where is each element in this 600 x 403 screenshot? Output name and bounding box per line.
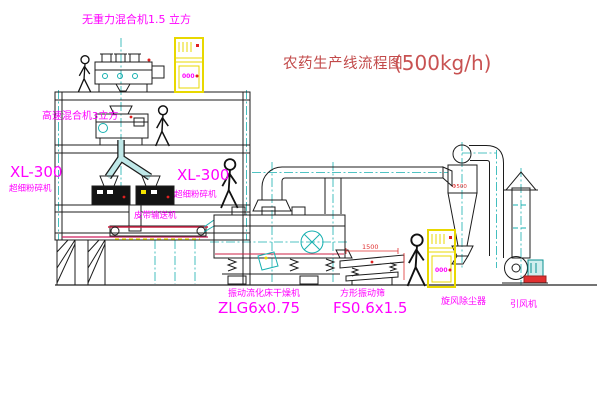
cabinet2-display: 000 [435, 267, 448, 274]
person-top-floor [78, 56, 90, 92]
person-second-floor [156, 106, 170, 146]
induced-draft-fan [502, 257, 548, 284]
label-mill-center-model: XL-300 [177, 166, 229, 184]
cad-flow-diagram: 000 [0, 0, 600, 403]
diagram-title: 农药生产线流程图 [283, 55, 403, 72]
label-mill-center-name: 超细粉碎机 [174, 189, 217, 200]
support-pier-left [57, 240, 75, 285]
support-pier-right [88, 240, 105, 285]
vibrating-sieve: 1500 [336, 243, 404, 285]
label-high-speed-mixer: 高速混合机3立方 [42, 109, 118, 122]
hot-air-duct [253, 167, 443, 211]
fluid-bed-dryer [214, 207, 345, 284]
diagram-svg: 000 [0, 0, 600, 403]
label-belt-conveyor: 皮带输送机 [134, 210, 177, 221]
label-sieve-model: FS0.6x1.5 [333, 299, 407, 317]
y-discharge-chute [108, 140, 150, 177]
mill-right [136, 176, 174, 205]
control-cabinet-2: 000 [428, 230, 455, 287]
label-dryer-model: ZLG6x0.75 [218, 299, 300, 317]
cyclone-outlet-duct [469, 146, 504, 259]
sieve-width-dimension: 1500 [362, 243, 379, 251]
label-cyclone: 旋风除尘器 [441, 295, 486, 307]
cabinet1-display: 000 [182, 73, 195, 80]
diagram-title-capacity: (500kg/h) [394, 51, 491, 75]
mill-left [92, 176, 130, 205]
cyclone: Φ500 [443, 145, 477, 264]
person-ground [408, 234, 426, 286]
label-gravity-mixer: 无重力混合机1.5 立方 [82, 12, 191, 26]
cyclone-dia-dimension: Φ500 [452, 184, 467, 190]
control-cabinet-1: 000 [175, 38, 203, 92]
label-fan: 引风机 [510, 298, 537, 310]
gravity-mixer [95, 54, 164, 92]
label-mill-left-name: 超细粉碎机 [9, 183, 52, 194]
label-sieve-name: 方形振动筛 [340, 287, 385, 299]
label-mill-left-model: XL-300 [10, 163, 62, 181]
label-dryer-name: 振动流化床干燥机 [228, 287, 300, 299]
